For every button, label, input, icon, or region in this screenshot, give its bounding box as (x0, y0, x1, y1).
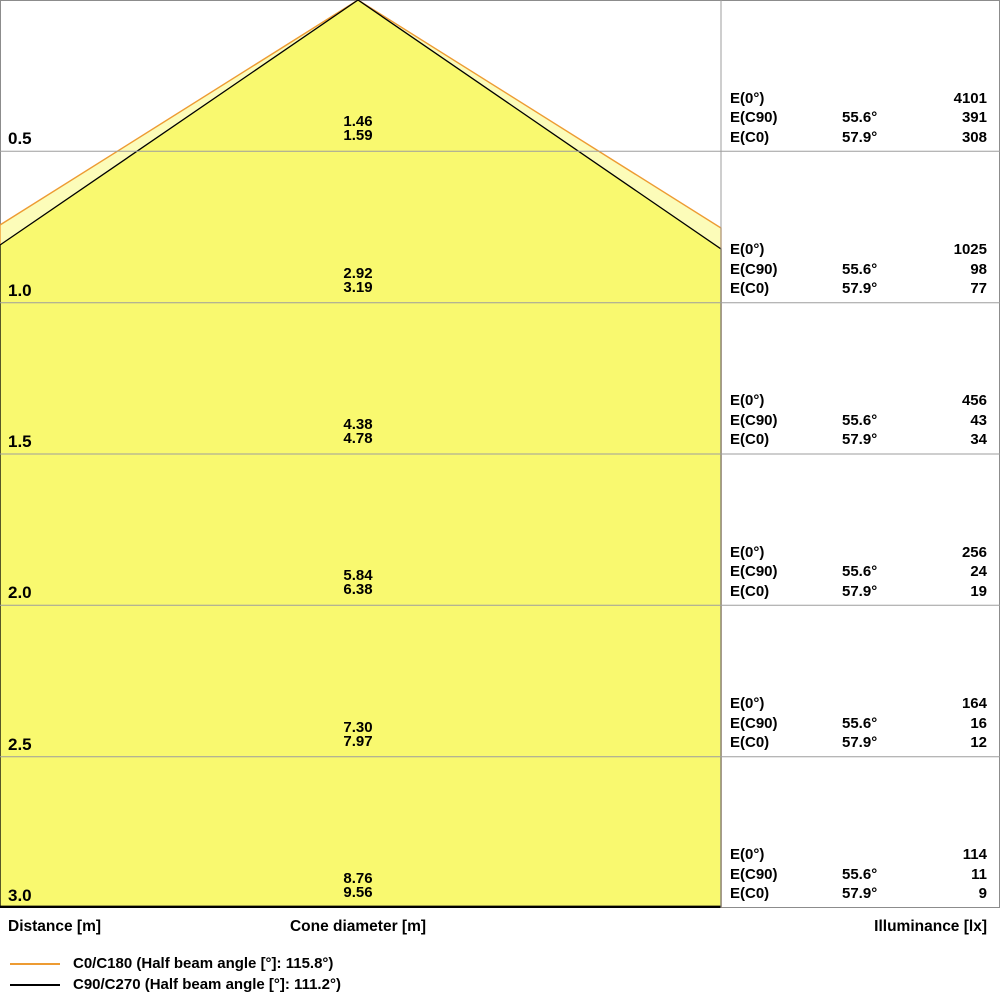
illuminance-value: 114 (963, 845, 987, 865)
illuminance-label: E(C90) (730, 108, 842, 128)
illuminance-label: E(0°) (730, 391, 842, 411)
illuminance-label: E(C90) (730, 714, 842, 734)
illuminance-line: E(0°) 4101 (730, 89, 987, 109)
illuminance-value: 308 (962, 128, 987, 148)
illuminance-angle: 57.9° (842, 884, 979, 904)
illuminance-line: E(C0) 57.9° 308 (730, 128, 987, 148)
illuminance-label: E(C90) (730, 562, 842, 582)
illuminance-value: 19 (970, 582, 987, 602)
illuminance-value: 11 (971, 865, 987, 885)
illuminance-label: E(0°) (730, 89, 842, 109)
illuminance-line: E(C0) 57.9° 19 (730, 582, 987, 602)
illuminance-label: E(C0) (730, 733, 842, 753)
illuminance-value: 1025 (954, 240, 987, 260)
distance-row: 2.0 5.84 6.38 E(0°) 256 E(C90) 55.6° 24 … (0, 454, 1000, 605)
cone-diameter-values: 8.76 9.56 (278, 872, 438, 900)
illuminance-angle: 57.9° (842, 582, 970, 602)
illuminance-table: E(0°) 164 E(C90) 55.6° 16 E(C0) 57.9° 12 (730, 694, 987, 753)
illuminance-line: E(C90) 55.6° 16 (730, 714, 987, 734)
distance-row: 1.5 4.38 4.78 E(0°) 456 E(C90) 55.6° 43 … (0, 303, 1000, 454)
illuminance-line: E(C90) 55.6° 391 (730, 108, 987, 128)
cone-diameter-values: 1.46 1.59 (278, 115, 438, 143)
illuminance-label: E(0°) (730, 694, 842, 714)
illuminance-angle: 55.6° (842, 865, 971, 885)
illuminance-table: E(0°) 456 E(C90) 55.6° 43 E(C0) 57.9° 34 (730, 391, 987, 450)
distance-row: 0.5 1.46 1.59 E(0°) 4101 E(C90) 55.6° 39… (0, 0, 1000, 151)
illuminance-line: E(0°) 456 (730, 391, 987, 411)
cone-diameter-axis-label: Cone diameter [m] (258, 918, 458, 936)
illuminance-label: E(0°) (730, 543, 842, 563)
illuminance-value: 16 (970, 714, 987, 734)
illuminance-angle (842, 845, 963, 865)
illuminance-angle: 55.6° (842, 108, 962, 128)
illuminance-value: 9 (979, 884, 987, 904)
illuminance-label: E(C0) (730, 582, 842, 602)
cone-diameter-values: 2.92 3.19 (278, 267, 438, 295)
illuminance-table: E(0°) 4101 E(C90) 55.6° 391 E(C0) 57.9° … (730, 89, 987, 148)
legend: C0/C180 (Half beam angle [°]: 115.8°) C9… (10, 953, 341, 995)
illuminance-label: E(C90) (730, 260, 842, 280)
illuminance-angle: 55.6° (842, 411, 970, 431)
illuminance-label: E(C0) (730, 279, 842, 299)
illuminance-line: E(C90) 55.6° 98 (730, 260, 987, 280)
illuminance-angle (842, 543, 962, 563)
illuminance-value: 256 (962, 543, 987, 563)
illuminance-line: E(C0) 57.9° 34 (730, 430, 987, 450)
illuminance-label: E(C90) (730, 411, 842, 431)
distance-row: 3.0 8.76 9.56 E(0°) 114 E(C90) 55.6° 11 … (0, 757, 1000, 908)
illuminance-axis-label: Illuminance [lx] (874, 918, 987, 936)
light-cone-diagram: 0.5 1.46 1.59 E(0°) 4101 E(C90) 55.6° 39… (0, 0, 1000, 1000)
cone-diameter-values: 7.30 7.97 (278, 721, 438, 749)
legend-item-c90-c270: C90/C270 (Half beam angle [°]: 111.2°) (10, 974, 341, 995)
illuminance-angle (842, 240, 954, 260)
illuminance-angle: 57.9° (842, 128, 962, 148)
illuminance-angle (842, 391, 962, 411)
legend-item-c0-c180: C0/C180 (Half beam angle [°]: 115.8°) (10, 953, 341, 974)
cone-diameter-c0: 1.59 (278, 129, 438, 143)
illuminance-line: E(C0) 57.9° 9 (730, 884, 987, 904)
illuminance-label: E(C0) (730, 430, 842, 450)
illuminance-value: 24 (970, 562, 987, 582)
distance-label: 3.0 (8, 886, 32, 906)
illuminance-line: E(0°) 1025 (730, 240, 987, 260)
illuminance-line: E(C90) 55.6° 24 (730, 562, 987, 582)
cone-diameter-c0: 3.19 (278, 281, 438, 295)
cone-diameter-c0: 7.97 (278, 735, 438, 749)
illuminance-label: E(0°) (730, 845, 842, 865)
illuminance-table: E(0°) 114 E(C90) 55.6° 11 E(C0) 57.9° 9 (730, 845, 987, 904)
illuminance-angle: 55.6° (842, 562, 970, 582)
illuminance-line: E(C90) 55.6° 43 (730, 411, 987, 431)
legend-label-c0-c180: C0/C180 (Half beam angle [°]: 115.8°) (73, 955, 333, 972)
illuminance-label: E(C90) (730, 865, 842, 885)
illuminance-angle: 57.9° (842, 279, 970, 299)
illuminance-angle (842, 89, 954, 109)
illuminance-value: 164 (962, 694, 987, 714)
distance-axis-label: Distance [m] (8, 918, 101, 936)
distance-label: 2.5 (8, 735, 32, 755)
illuminance-label: E(0°) (730, 240, 842, 260)
illuminance-value: 4101 (954, 89, 987, 109)
illuminance-value: 43 (970, 411, 987, 431)
distance-row: 2.5 7.30 7.97 E(0°) 164 E(C90) 55.6° 16 … (0, 605, 1000, 756)
illuminance-line: E(0°) 164 (730, 694, 987, 714)
distance-row: 1.0 2.92 3.19 E(0°) 1025 E(C90) 55.6° 98… (0, 151, 1000, 302)
illuminance-value: 12 (970, 733, 987, 753)
illuminance-table: E(0°) 256 E(C90) 55.6° 24 E(C0) 57.9° 19 (730, 543, 987, 602)
distance-label: 0.5 (8, 129, 32, 149)
legend-label-c90-c270: C90/C270 (Half beam angle [°]: 111.2°) (73, 976, 341, 993)
cone-diameter-values: 5.84 6.38 (278, 569, 438, 597)
illuminance-label: E(C0) (730, 884, 842, 904)
c0-c180-line-swatch (10, 963, 60, 965)
illuminance-value: 391 (962, 108, 987, 128)
cone-diameter-c0: 9.56 (278, 886, 438, 900)
c90-c270-line-swatch (10, 984, 60, 986)
illuminance-value: 456 (962, 391, 987, 411)
illuminance-angle (842, 694, 962, 714)
illuminance-angle: 57.9° (842, 430, 970, 450)
cone-diameter-c0: 6.38 (278, 583, 438, 597)
illuminance-value: 77 (970, 279, 987, 299)
distance-label: 1.5 (8, 432, 32, 452)
illuminance-line: E(C0) 57.9° 77 (730, 279, 987, 299)
illuminance-line: E(0°) 256 (730, 543, 987, 563)
illuminance-angle: 57.9° (842, 733, 970, 753)
illuminance-table: E(0°) 1025 E(C90) 55.6° 98 E(C0) 57.9° 7… (730, 240, 987, 299)
illuminance-line: E(0°) 114 (730, 845, 987, 865)
illuminance-label: E(C0) (730, 128, 842, 148)
cone-diameter-values: 4.38 4.78 (278, 418, 438, 446)
distance-label: 1.0 (8, 281, 32, 301)
cone-diameter-c0: 4.78 (278, 432, 438, 446)
axis-labels: Distance [m] Cone diameter [m] Illuminan… (0, 915, 1000, 939)
illuminance-angle: 55.6° (842, 260, 970, 280)
illuminance-angle: 55.6° (842, 714, 970, 734)
distance-label: 2.0 (8, 583, 32, 603)
illuminance-value: 98 (970, 260, 987, 280)
illuminance-value: 34 (970, 430, 987, 450)
illuminance-line: E(C90) 55.6° 11 (730, 865, 987, 885)
illuminance-line: E(C0) 57.9° 12 (730, 733, 987, 753)
